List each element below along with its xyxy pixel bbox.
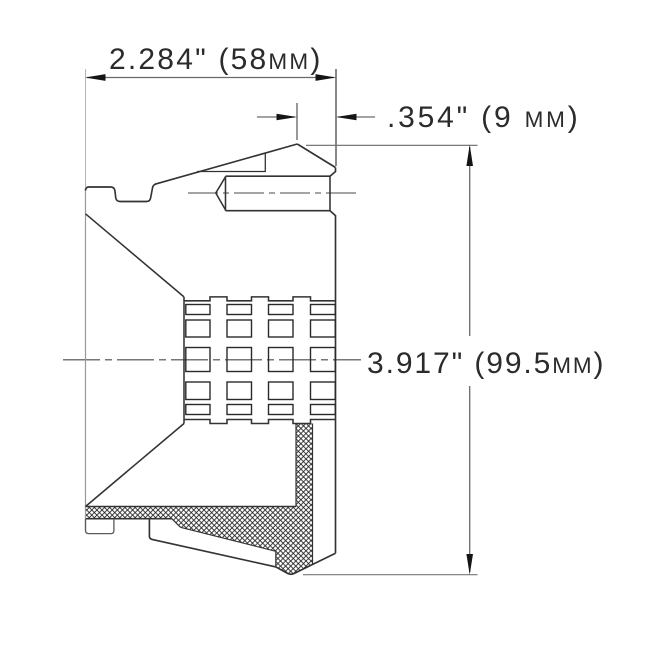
svg-text:3.917" (99.5MM): 3.917" (99.5MM) [367,347,605,380]
svg-text:2.284" (58MM): 2.284" (58MM) [109,43,323,76]
svg-text:.354" (9 MM): .354" (9 MM) [387,101,580,134]
